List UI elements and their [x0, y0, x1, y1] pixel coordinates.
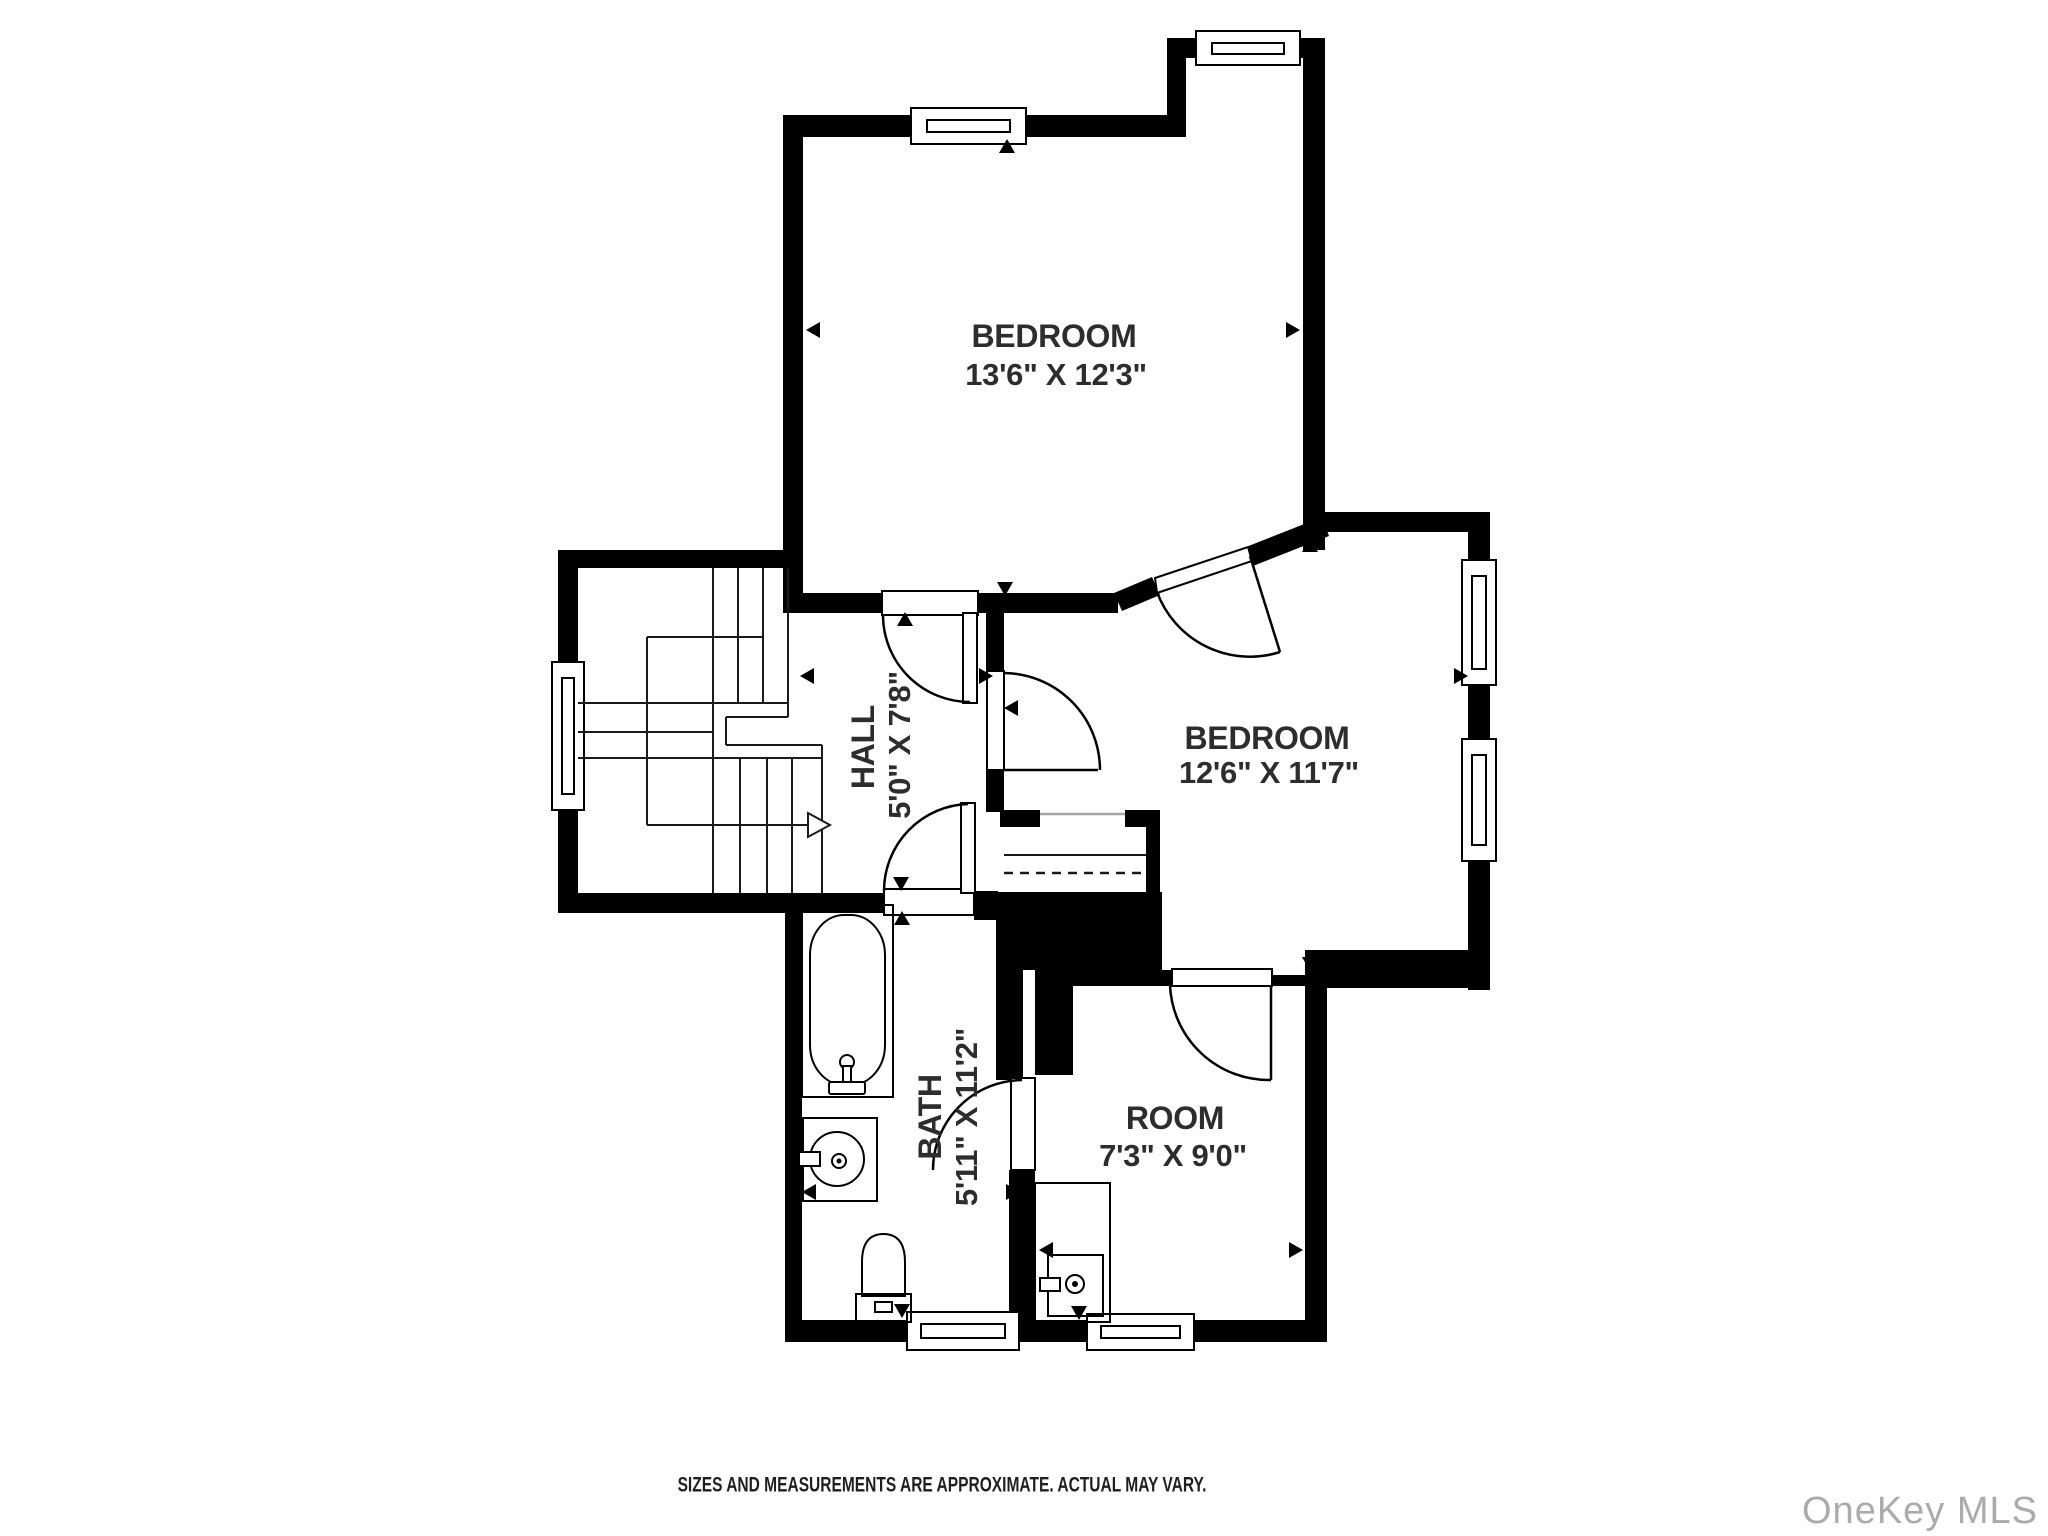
arrow-hall-left	[800, 668, 814, 684]
window-stairs-left	[552, 662, 584, 810]
footer: SIZES AND MEASUREMENTS ARE APPROXIMATE. …	[678, 1472, 2038, 1532]
wall-closet-post-left	[1000, 810, 1040, 827]
wall-room-right	[1305, 950, 1327, 1342]
door-angled-arc	[1157, 592, 1280, 657]
window-room-bottom	[1087, 1314, 1194, 1350]
door-room-arc	[1170, 985, 1271, 1080]
window-bed2-right-lower	[1462, 739, 1496, 861]
door-room-opening	[1172, 969, 1272, 986]
door-bed1-leaf	[963, 613, 977, 703]
wall-divider-lower	[986, 768, 1004, 812]
room-label-bath-dims: 5'11" X 11'2"	[949, 1028, 984, 1206]
arrow-bed1-right	[1286, 322, 1300, 338]
wall-leg	[1035, 970, 1073, 1075]
window-bed2-right-upper	[1462, 560, 1496, 685]
room-labels: BEDROOM 13'6" X 12'3" BEDROOM 12'6" X 11…	[845, 318, 1359, 1206]
room-label-bedroom1-dims: 13'6" X 12'3"	[965, 357, 1147, 392]
wall-bed1-right	[1303, 38, 1325, 550]
arrow-bed2-left	[1004, 700, 1018, 716]
window-bed1-top-left	[911, 108, 1026, 144]
door-bed2-arc	[1003, 673, 1100, 770]
wall-room-top	[1073, 970, 1172, 986]
wall-bath-right-upper	[996, 892, 1023, 1080]
room-label-room-dims: 7'3" X 9'0"	[1099, 1138, 1247, 1173]
watermark-text: OneKey MLS	[1802, 1490, 2038, 1532]
wall-room-top-stub	[1272, 975, 1305, 986]
window-bath-bottom	[907, 1312, 1019, 1350]
wall-stub-d4	[974, 891, 998, 920]
door-angled-leaf	[1155, 547, 1252, 593]
floorplan-canvas: BEDROOM 13'6" X 12'3" BEDROOM 12'6" X 11…	[0, 0, 2048, 1536]
door-bathroom-opening	[1011, 1078, 1035, 1170]
wall-bottom-band	[785, 1320, 1327, 1342]
room-label-hall-name: HALL	[845, 705, 881, 789]
wall-bed2-top	[1310, 512, 1490, 532]
room-label-bedroom2-name: BEDROOM	[1184, 720, 1349, 756]
disclaimer-text: SIZES AND MEASUREMENTS ARE APPROXIMATE. …	[678, 1472, 1207, 1496]
wall-bath-left	[785, 893, 802, 1342]
room-label-bedroom1-name: BEDROOM	[971, 318, 1136, 354]
room-label-room-name: ROOM	[1126, 1100, 1224, 1136]
room-label-hall-dims: 5'0" X 7'8"	[882, 671, 917, 819]
arrow-bath-left	[802, 1184, 816, 1200]
arrow-room-right	[1289, 1242, 1303, 1258]
door-bed1-opening	[882, 591, 978, 615]
wall-bed2-bottom	[1305, 950, 1490, 988]
stairs-direction-arrowhead	[808, 813, 830, 837]
wall-divider-upper	[986, 593, 1004, 673]
arrow-bed1-left	[806, 322, 820, 338]
room-label-bath-name: BATH	[912, 1074, 948, 1159]
wall-closet-right	[1146, 827, 1160, 892]
wall-hall-bottom	[558, 893, 884, 913]
wall-stairs-top	[558, 550, 783, 568]
staircase	[578, 568, 830, 893]
door-angled-open-leaf	[1250, 556, 1280, 652]
room-label-bedroom2-dims: 12'6" X 11'7"	[1179, 755, 1359, 790]
wall-angled-left	[1114, 577, 1160, 611]
arrow-room-left	[1039, 1242, 1053, 1258]
door-bath-leaf	[961, 803, 975, 893]
window-bed1-top-right	[1196, 31, 1300, 65]
wall-bed1-left	[783, 115, 803, 613]
door-bed2-opening	[987, 671, 1004, 770]
bathtub	[802, 905, 893, 1097]
arrow-room-bottom	[1071, 1306, 1087, 1320]
wall-closet-post-right	[1125, 810, 1160, 827]
